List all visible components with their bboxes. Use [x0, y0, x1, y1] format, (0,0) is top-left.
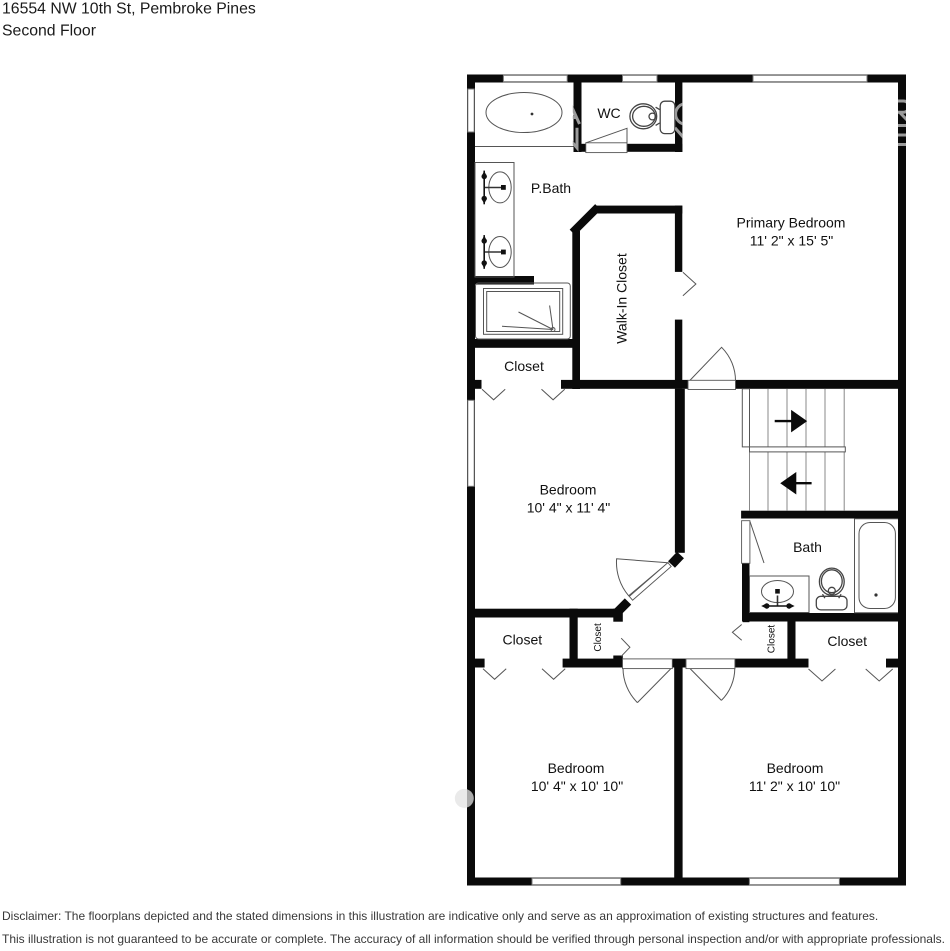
svg-text:P.Bath: P.Bath [531, 180, 571, 196]
svg-text:10' 4" x 10' 10": 10' 4" x 10' 10" [531, 778, 623, 794]
svg-text:This illustration is not guara: This illustration is not guaranteed to b… [2, 932, 945, 946]
svg-text:Bedroom: Bedroom [540, 481, 597, 497]
svg-text:Closet: Closet [593, 623, 604, 652]
svg-text:Walk-In Closet: Walk-In Closet [614, 253, 630, 344]
svg-text:Closet: Closet [502, 632, 542, 648]
svg-text:11' 2" x 10' 10": 11' 2" x 10' 10" [749, 778, 840, 794]
svg-text:10' 4" x 11' 4": 10' 4" x 11' 4" [527, 499, 611, 515]
svg-text:16554 NW 10th St, Pembroke Pin: 16554 NW 10th St, Pembroke Pines [2, 1, 256, 18]
svg-text:Closet: Closet [504, 358, 544, 374]
svg-text:Bath: Bath [793, 539, 822, 555]
svg-text:WC: WC [597, 105, 620, 121]
svg-text:11' 2" x 15' 5": 11' 2" x 15' 5" [750, 233, 834, 249]
svg-text:Closet: Closet [766, 625, 777, 654]
svg-text:Bedroom: Bedroom [767, 760, 824, 776]
svg-text:Second Floor: Second Floor [2, 23, 96, 40]
svg-text:Closet: Closet [827, 633, 867, 649]
svg-text:Bedroom: Bedroom [548, 760, 605, 776]
svg-text:Primary Bedroom: Primary Bedroom [737, 215, 846, 231]
svg-text:Disclaimer: The floorplans dep: Disclaimer: The floorplans depicted and … [2, 909, 878, 923]
